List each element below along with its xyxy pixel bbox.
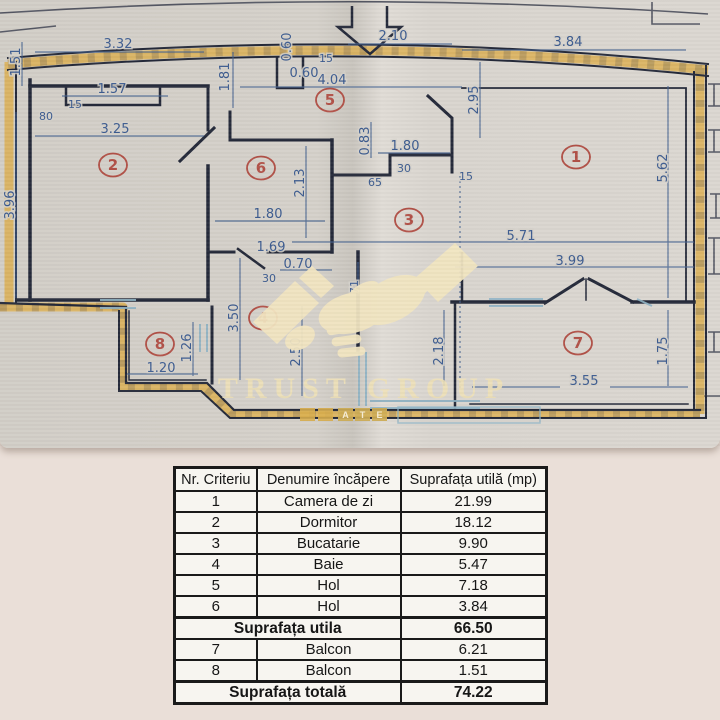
dimension-label: 5.71 (507, 229, 536, 244)
table-header-row: Nr. CriteriuDenumire încăpereSuprafața u… (175, 468, 547, 492)
dimension-label: 1.80 (391, 139, 420, 154)
cell-room-number: 6 (175, 596, 257, 618)
dimension-label: 3.96 (3, 191, 18, 220)
dimension-label: 1.57 (98, 82, 127, 97)
room-number-8: 8 (146, 333, 174, 356)
table-row: 2Dormitor18.12 (175, 512, 547, 533)
dimension-label: 3.99 (556, 254, 585, 269)
watermark-banner-letter: T (360, 410, 366, 420)
cell-room-number: 2 (175, 512, 257, 533)
cell-room-name: Balcon (257, 660, 401, 682)
cell-room-number: 1 (175, 491, 257, 512)
dimension-label: 0.60 (280, 33, 295, 62)
floorplan-photo: 3.321.511.5715803.253.961.810.60150.604.… (0, 0, 720, 448)
table-row: 7Balcon6.21 (175, 639, 547, 660)
cell-area-value: 5.47 (401, 554, 547, 575)
cell-room-name: Balcon (257, 639, 401, 660)
area-table-body: 1Camera de zi21.992Dormitor18.123Bucatar… (175, 491, 547, 704)
area-table: Nr. CriteriuDenumire încăpereSuprafața u… (173, 466, 548, 705)
dimension-label: 65 (368, 176, 382, 189)
cell-area-value: 6.21 (401, 639, 547, 660)
room-number-text: 1 (571, 148, 581, 166)
cell-area-value: 1.51 (401, 660, 547, 682)
watermark-text: TRUST GROUP (218, 372, 510, 405)
dimension-label: 30 (397, 162, 411, 175)
dimension-label: 80 (39, 110, 53, 123)
dimension-label: 3.55 (570, 374, 599, 389)
dimension-label: 2.18 (432, 337, 447, 366)
table-row: 3Bucatarie9.90 (175, 533, 547, 554)
cell-room-name: Hol (257, 596, 401, 618)
table-header-cell: Nr. Criteriu (175, 468, 257, 492)
room-number-1: 1 (562, 146, 590, 169)
walls (0, 44, 708, 418)
table-header-cell: Denumire încăpere (257, 468, 401, 492)
dimension-label: 5.62 (656, 154, 671, 183)
dimension-label: 1.51 (9, 48, 24, 77)
room-number-text: 3 (404, 211, 414, 229)
room-number-7: 7 (564, 332, 592, 355)
watermark-banner-letter: E (376, 410, 382, 420)
dimension-label: 1.69 (257, 240, 286, 255)
dimension-label: 1.81 (218, 63, 233, 92)
room-number-6: 6 (247, 157, 275, 180)
room-number-5: 5 (316, 89, 344, 112)
dimension-label: 4.04 (318, 73, 347, 88)
table-row: 8Balcon1.51 (175, 660, 547, 682)
room-number-text: 7 (573, 334, 583, 352)
dimension-label: 1.20 (147, 361, 176, 376)
cell-room-number: 7 (175, 639, 257, 660)
dimension-label: 0.60 (290, 66, 319, 81)
dimension-label: 2.13 (293, 169, 308, 198)
watermark-banner-letter: A (342, 410, 349, 420)
table-row: 5Hol7.18 (175, 575, 547, 596)
cell-room-name: Dormitor (257, 512, 401, 533)
cell-area-value: 74.22 (401, 682, 547, 704)
cell-room-name: Hol (257, 575, 401, 596)
cell-area-value: 66.50 (401, 618, 547, 640)
dimension-label: 1.75 (656, 337, 671, 366)
area-table-head: Nr. CriteriuDenumire încăpereSuprafața u… (175, 468, 547, 492)
cell-summary-label: Suprafața totală (175, 682, 401, 704)
dimension-label: 0.83 (358, 127, 373, 156)
dimension-label: 3.25 (101, 122, 130, 137)
dimension-label: 1.80 (254, 207, 283, 222)
dimension-labels: 3.321.511.5715803.253.961.810.60150.604.… (3, 29, 671, 389)
cell-room-number: 3 (175, 533, 257, 554)
dimension-label: 15 (319, 52, 333, 65)
dimension-label: 30 (262, 272, 276, 285)
cell-area-value: 3.84 (401, 596, 547, 618)
cell-room-name: Baie (257, 554, 401, 575)
room-number-2: 2 (99, 154, 127, 177)
dimension-label: 2.95 (467, 86, 482, 115)
table-row: 6Hol3.84 (175, 596, 547, 618)
dimension-label: 1.26 (180, 334, 195, 363)
dimension-label: 2.10 (379, 29, 408, 44)
cell-area-value: 9.90 (401, 533, 547, 554)
cell-area-value: 7.18 (401, 575, 547, 596)
room-number-text: 8 (155, 335, 165, 353)
cell-room-name: Bucatarie (257, 533, 401, 554)
cell-room-number: 8 (175, 660, 257, 682)
dimension-label: 15 (459, 170, 473, 183)
table-row: 4Baie5.47 (175, 554, 547, 575)
dimension-label: 15 (68, 98, 82, 111)
watermark: TRUST GROUP ATE (218, 243, 540, 423)
dimension-label: 3.32 (104, 37, 133, 52)
cell-room-name: Camera de zi (257, 491, 401, 512)
table-header-cell: Suprafața utilă (mp) (401, 468, 547, 492)
room-number-text: 6 (256, 159, 266, 177)
table-summary-row: Suprafața totală74.22 (175, 682, 547, 704)
room-number-text: 5 (325, 91, 335, 109)
cell-summary-label: Suprafața utila (175, 618, 401, 640)
cell-room-number: 4 (175, 554, 257, 575)
floorplan-drawing: 3.321.511.5715803.253.961.810.60150.604.… (0, 0, 720, 448)
room-number-3: 3 (395, 209, 423, 232)
dimension-label: 3.84 (554, 35, 583, 50)
cell-room-number: 5 (175, 575, 257, 596)
area-table-section: Nr. CriteriuDenumire încăpereSuprafața u… (173, 466, 548, 705)
table-row: 1Camera de zi21.99 (175, 491, 547, 512)
cell-area-value: 21.99 (401, 491, 547, 512)
dimension-label: 3.50 (227, 304, 242, 333)
cell-area-value: 18.12 (401, 512, 547, 533)
room-number-text: 2 (108, 156, 118, 174)
table-summary-row: Suprafața utila66.50 (175, 618, 547, 640)
